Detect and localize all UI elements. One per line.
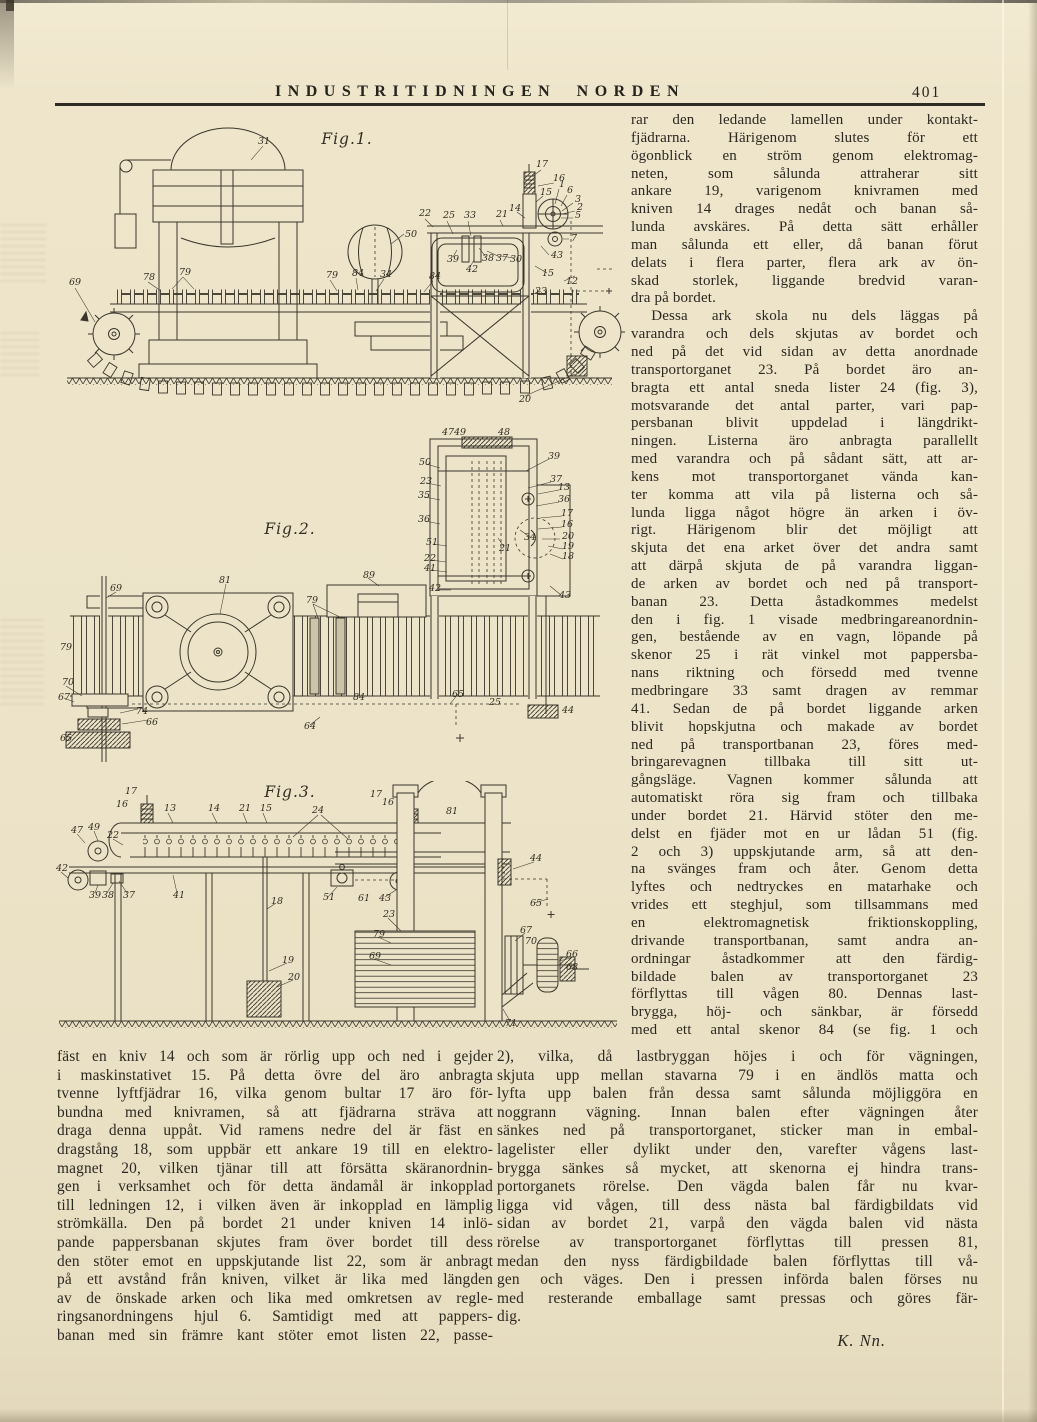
text-line: den stöter emot en uppskjutande list 22,… [57,1253,493,1272]
armature-weight [247,857,281,1017]
page-edge-right [1028,0,1037,1422]
part-label: 51 [323,892,335,903]
part-label: 69 [69,277,81,288]
text-line: draga denna uppåt. Vid ramens nedre del … [57,1122,493,1141]
part-label: 84 [352,268,364,279]
part-label: 39 [548,451,560,462]
text-line: lyftes och nedtryckes en matarhake och [631,879,978,897]
part-label: 15 [260,803,272,814]
text-line: kens mot transportorganet vända kan- [631,469,978,487]
part-label: 42 [465,264,478,275]
text-line: K. Nn. [497,1332,978,1351]
part-label: 50 [405,229,417,240]
figure-1-drawing: Fig.1. [55,126,625,418]
text-line: att därpå skjuta de på varandra liggan- [631,558,978,576]
part-label: 1 [559,179,565,190]
text-line: banan 23. Detta åstadkommes medelst [631,594,978,612]
part-label: 84 [429,271,441,282]
part-label: 13 [164,803,176,814]
figure-caption: Fig.1. [320,130,372,148]
text-line: fäst en kniv 14 och som är rörlig upp oc… [57,1048,493,1067]
part-label: 38 [482,253,494,264]
part-label: 71 [505,1018,517,1029]
text-line: ordningar åstadkommer att den färdig- [631,951,978,969]
part-label: 14 [208,803,220,814]
text-line: 2 och 3) uppskjutande arm, så att den- [631,844,978,862]
part-label: 21 [498,543,511,554]
part-label: 44 [529,853,542,864]
text-line: medan den nyss färdigbildade balen förfl… [497,1253,978,1272]
text-line: på ett avstånd från kniven, vilket är li… [57,1271,493,1290]
part-label: 36 [558,494,570,505]
text-line: 41. Sedan de på bordet liggande arken [631,701,978,719]
part-label: 79 [373,929,385,940]
text-line: ter komma att vila på listerna och så- [631,487,978,505]
part-label: 49 [453,427,466,438]
text-line: i maskinstativet 15. På detta övre del ä… [57,1067,493,1086]
text-line: delst en fjäder mot en ur lådan 51 (fig. [631,826,978,844]
part-label: 51 [426,537,438,548]
part-label: 16 [382,797,394,808]
part-label: 42 [428,583,441,594]
text-line: bringarevagnen tillbaka till sitt ut- [631,754,978,772]
part-label: 39 [89,890,101,901]
page-edge-highlight [1002,0,1004,1422]
text-line: den i fig. 1 visade medbringareanordnin- [631,612,978,630]
part-label: 69 [110,583,122,594]
part-label: 64 [304,721,316,732]
part-label: 65 [530,898,542,909]
bale-press [115,128,317,378]
text-line: dra på bordet. [631,290,978,308]
text-line: av de önskade arken och lika med omkrets… [57,1290,493,1309]
text-line: under bordet 21. Härvid stöter den me- [631,808,978,826]
text-line: ögonblick en ström genom elektromag- [631,148,978,166]
text-line: fjädrarna. Härigenom slutes för ett [631,130,978,148]
page-edge-left [0,0,14,90]
part-label: 6 [567,185,573,196]
ink-bleed-smudge [0,615,44,705]
part-label: 50 [419,457,431,468]
part-label: 47 [70,825,84,836]
text-line: banan med sin främre kant stöter emot li… [57,1327,493,1346]
text-line: pande pappersbanan skjutes fram över bor… [57,1234,493,1253]
part-label: 67 [520,925,533,936]
text-line: brygga, höj- och sänkbar, är försedd [631,1004,978,1022]
text-line: kniven 14 drages nedåt och banan så- [631,201,978,219]
text-line: automatiskt röra sig fram och tillbaka [631,790,978,808]
slat-chain [88,346,596,395]
part-label: 15 [542,268,554,279]
part-label: 44 [561,705,574,716]
part-label: 5 [575,210,581,221]
part-label: 89 [363,570,375,581]
text-line: rörelse av transportorganet förflyttas t… [497,1234,978,1253]
text-line: med resterande emballage samt pressas oc… [497,1290,978,1309]
part-label: 31 [258,136,270,147]
part-label: 23 [419,476,432,487]
part-label: 12 [566,276,578,287]
part-label: 21 [238,803,251,814]
ground-line [59,1021,617,1028]
part-label: 79 [306,595,318,606]
text-line: nans riktning och försedd med tvenne [631,665,978,683]
part-label: 35 [418,490,430,501]
text-line: bildade balen av transportorganet 23 [631,969,978,987]
part-label: 79 [179,267,191,278]
leader-lines [75,146,575,396]
text-line: rigt. Härigenom blir det möjligt att [631,522,978,540]
text-line: lagelister eller dylikt under den, varef… [497,1141,978,1160]
part-label: 69 [369,951,381,962]
text-line: persbanan blivit uppdelad i längdrikt- [631,415,978,433]
text-line: ningen. Listerna äro anbragta parallellt [631,433,978,451]
text-line: gen i verksamhet och för detta ändamål ä… [57,1178,493,1197]
ink-bleed-smudge [0,330,40,376]
part-label: 16 [116,799,128,810]
text-line: brygga sänkes så mycket, att skenorna ej… [497,1160,978,1179]
part-label: 16 [561,519,573,530]
text-line: portorganets rörelse. Den vägda balen få… [497,1178,978,1197]
ground-line [67,378,612,385]
text-line: skenor 25 i rät vinkel mot pappersba- [631,647,978,665]
figure1-part-labels: 31 50 69 78 79 79 84 34 84 22 25 33 21 1… [69,136,583,405]
text-line: de arken av bordet och ned på transport- [631,576,978,594]
figure-2-drawing: Fig.2. [58,426,630,784]
part-label: 23 [534,286,547,297]
corner-mark [6,0,14,11]
part-label: 68 [566,962,578,973]
part-label: 17 [536,159,549,170]
text-line: noggrann vägning. Innan balen efter vägn… [497,1104,978,1123]
part-label: 70 [525,936,537,947]
part-label: 34 [380,269,392,280]
part-label: 43 [558,590,571,601]
text-line: 2), vilka, då lastbryggan höjes i och fö… [497,1048,978,1067]
text-line: med varandra och på sådant sätt, att ar- [631,451,978,469]
figure-3-drawing: Fig.3. [55,781,630,1049]
text-line: med ett antal skenor 84 (se fig. 1 och [631,1022,978,1040]
part-label: 47 [441,427,455,438]
text-line: ned på det vid sidan av detta anordnade [631,344,978,362]
part-label: 41 [172,890,185,901]
part-label: 23 [382,909,395,920]
text-line: gen och väges. Den i pressen införda bal… [497,1271,978,1290]
text-line: dragstång 18, som uppbär ett ankare 19 t… [57,1141,493,1160]
text-line: en elektromagnetisk friktionskoppling, [631,915,978,933]
column-bottom-left: fäst en kniv 14 och som är rörlig upp oc… [57,1048,493,1346]
text-line: strömkälla. Den på bordet 21 under knive… [57,1215,493,1234]
part-label: 39 [447,254,459,265]
left-sprocket-wheel [81,308,140,360]
part-label: 20 [518,394,531,405]
part-label: 13 [558,482,570,493]
part-label: 36 [418,514,430,525]
text-line: ankare 19, varigenom knivramen med [631,183,978,201]
text-line: förflyttas till vågen 80. Dennas last- [631,986,978,1004]
page-edge-top [0,0,1037,3]
text-line: blivit hopskjutna och makade av bordet [631,719,978,737]
part-label: 70 [62,677,74,688]
arm-box [331,865,408,891]
magazine-page: INDUSTRITIDNINGEN NORDEN 401 Fig.1. [0,0,1037,1422]
text-line: lyfta upp balen från dessa samt sålunda … [497,1085,978,1104]
part-label: 65 [60,733,72,744]
part-label: 78 [143,272,155,283]
part-label: 43 [378,893,391,904]
part-label: 61 [358,893,370,904]
ink-bleed-smudge [0,222,46,282]
fold-line [507,0,508,70]
text-line: magnet 20, vilken tjänar till att försät… [57,1160,493,1179]
conveyor-band [110,290,587,351]
part-label: 21 [495,209,508,220]
part-label: 18 [271,896,283,907]
part-label: 20 [287,972,300,983]
text-line: delats i flera parter, flera ark av ön- [631,255,978,273]
part-label: 42 [55,863,68,874]
text-line: tvenne lyftfjädrar 16, vilka genom bulta… [57,1085,493,1104]
page-number: 401 [912,84,941,102]
text-line: varandra och dels skjutas av bordet och [631,326,978,344]
text-line: lunda ligga något högre än arken i öv- [631,505,978,523]
part-label: 17 [125,786,138,797]
part-label: 79 [326,270,338,281]
part-label: 25 [488,697,501,708]
part-label: 33 [464,210,476,221]
text-line: vrides ett steghjul, som tillsammans med [631,897,978,915]
part-label: 41 [423,563,436,574]
cam-box [327,585,426,617]
text-line: rar den ledande lamellen under kontakt- [631,112,978,130]
figure-caption: Fig.3. [263,783,315,801]
text-line: ned på transportbanan 23, föres med- [631,737,978,755]
text-line: bundna med knivramen, så att fjädrarna s… [57,1104,493,1123]
part-label: 34 [524,532,536,543]
part-label: 38 [102,890,114,901]
text-line: till ledningen 12, i vilken även är inko… [57,1197,493,1216]
part-label: 17 [561,508,574,519]
part-label: 18 [562,551,574,562]
part-label: 48 [497,427,510,438]
part-label: 49 [87,822,100,833]
text-line: gen, bestående av en vagn, löpande på [631,629,978,647]
part-label: 22 [418,208,431,219]
text-line: motsvarande det antal parter, vari pap- [631,398,978,416]
text-line: Dessa ark skola nu dels läggas på [631,308,978,326]
part-label: 24 [311,805,324,816]
part-label: 66 [566,949,578,960]
text-line: skad storlek, liggande bredvid varan- [631,273,978,291]
text-line: dig. [497,1308,978,1327]
part-label: 25 [442,210,455,221]
column-top-right: rar den ledande lamellen under kontakt-f… [631,112,978,1040]
text-line: ligga vid vågen, till dess nästa bal fär… [497,1197,978,1216]
text-line: sidan av bordet 21, varpå den vägda bale… [497,1215,978,1234]
text-line: neten, som sålunda attraherar sitt [631,166,978,184]
part-label: 74 [136,706,148,717]
part-label: 7 [571,233,578,244]
part-label: 65 [452,689,464,700]
text-line: drivande transportbanan, samt andra an- [631,933,978,951]
part-label: 19 [282,955,294,966]
column-bottom-right: 2), vilka, då lastbryggan höjes i och fö… [497,1048,978,1351]
text-line: medbringare 33 samt dragen av remmar [631,683,978,701]
text-line: lunda avskäres. På detta sätt erhåller [631,219,978,237]
part-label: 22 [106,830,119,841]
part-label: 81 [219,575,231,586]
part-label: 67 [58,692,71,703]
feed-table [69,823,511,873]
part-label: 30 [510,254,522,265]
text-line: ringsanordningens hjul 6. Samtidigt med … [57,1308,493,1327]
text-line: skjuta upp mellan stavarna 79 i en ändlö… [497,1067,978,1086]
part-label: 15 [540,187,552,198]
part-label: 37 [496,253,509,264]
part-label: 84 [353,692,365,703]
text-line: gångsläge. Vagnen kommer sålunda att [631,772,978,790]
part-label: 81 [446,806,458,817]
text-line: transportorganet 23. På bordet äro an- [631,362,978,380]
part-label: 14 [509,203,521,214]
part-label: 43 [550,250,563,261]
right-sprocket-wheel [574,306,625,358]
text-line: bragta ett antal sneda lister 24 (fig. 3… [631,380,978,398]
paper-bale [355,931,475,1007]
figure-caption: Fig.2. [263,520,315,538]
text-line: skjuta det ena arket över det andra samt [631,540,978,558]
page-edge-bottom [0,1409,1037,1422]
page-title: INDUSTRITIDNINGEN NORDEN [55,83,905,101]
part-label: 79 [60,642,72,653]
part-label: 66 [146,717,158,728]
header-rule [55,103,985,106]
text-line: sänkes ned på transportorganet, sticker … [497,1122,978,1141]
part-label: 37 [123,890,136,901]
text-line: na svänges fram och åter. Genom detta [631,861,978,879]
text-line: man sålunda ett eller, då banan förut [631,237,978,255]
